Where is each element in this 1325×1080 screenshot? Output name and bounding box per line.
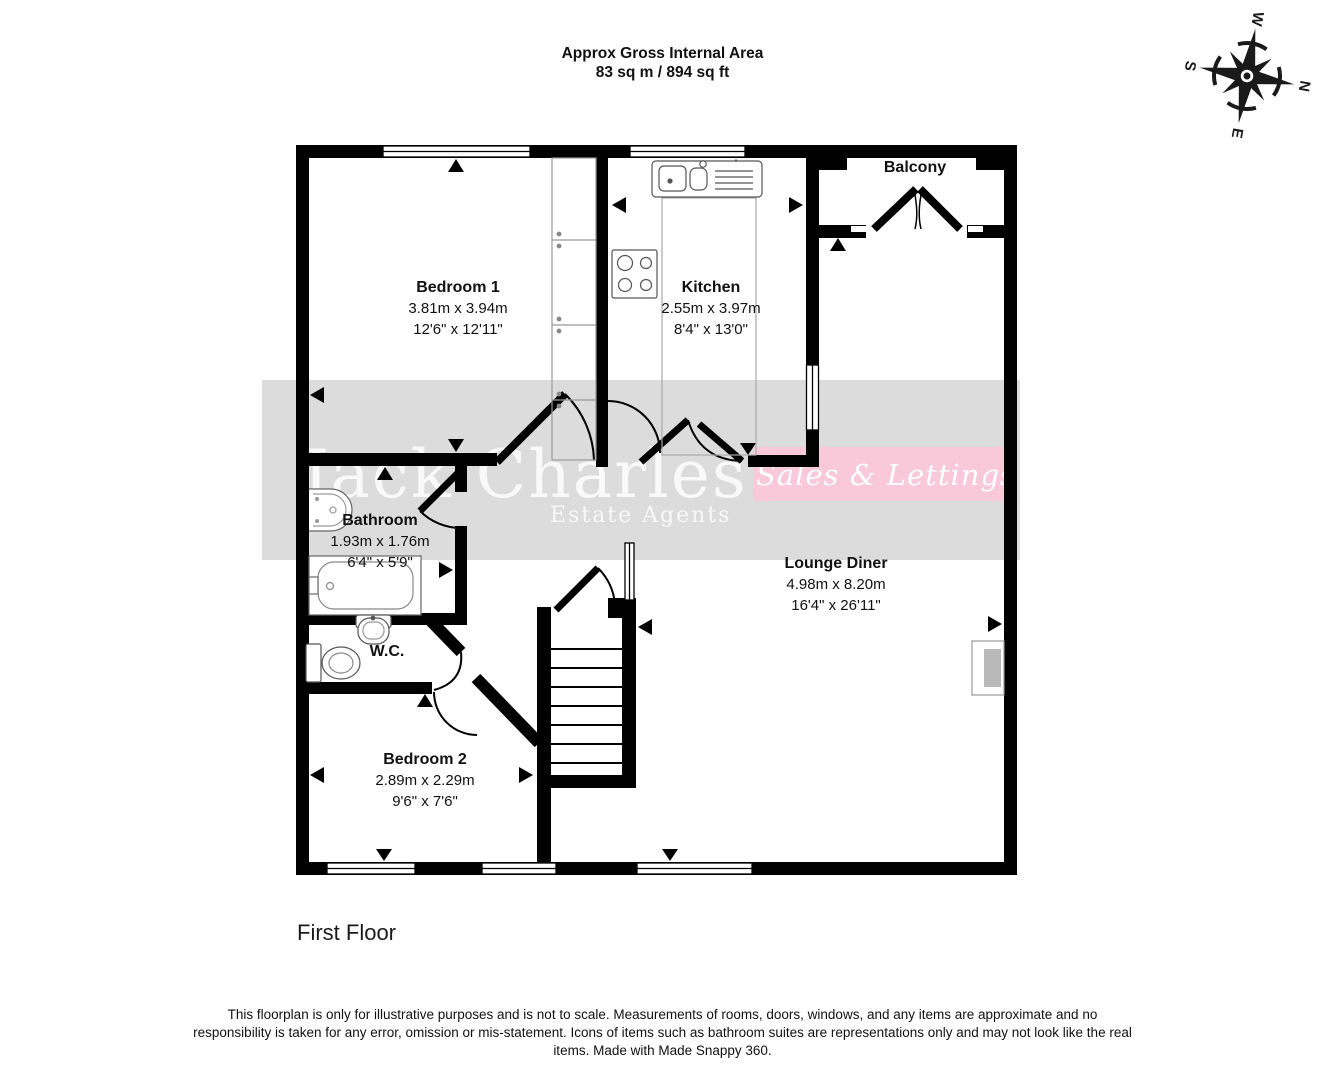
balcony-door-notch-right — [968, 226, 983, 232]
window-hall-bottom — [482, 863, 556, 874]
stairs-icon — [551, 649, 622, 763]
marker-up — [417, 694, 433, 707]
room-dim-metric-lounge: 4.98m x 8.20m — [786, 576, 885, 593]
room-dim-imperial-kitchen: 8'4" x 13'0" — [674, 321, 748, 338]
compass-w-label: W — [1247, 10, 1266, 28]
marker-down — [662, 849, 678, 861]
window-bedroom2-bottom — [327, 863, 415, 874]
room-label-kitchen: Kitchen — [682, 279, 741, 296]
room-label-balcony: Balcony — [884, 159, 946, 176]
door-bedroom2 — [434, 692, 477, 735]
room-dim-imperial-lounge: 16'4" x 26'11" — [791, 597, 881, 614]
door-wc — [434, 652, 461, 690]
hob-icon — [612, 250, 657, 298]
door-balcony-french — [874, 189, 960, 229]
window-lounge-bottom — [637, 863, 752, 874]
room-label-lounge: Lounge Diner — [784, 555, 887, 572]
marker-right — [789, 197, 803, 213]
marker-left — [638, 619, 652, 635]
window-stairs — [625, 543, 634, 600]
marker-up — [830, 238, 846, 251]
marker-left — [612, 197, 626, 213]
floor-label: First Floor — [297, 920, 396, 946]
compass-rose-icon: N E S W — [1171, 0, 1324, 149]
footer: This floorplan is only for illustrative … — [0, 1006, 1325, 1060]
disclaimer-text: This floorplan is only for illustrative … — [188, 1006, 1138, 1060]
room-dim-metric-kitchen: 2.55m x 3.97m — [661, 300, 760, 317]
floor-plan-drawing: Jack Charles Estate Agents Sales & Letti… — [0, 0, 1325, 1080]
floorplan-page: Approx Gross Internal Area 83 sq m / 894… — [0, 0, 1325, 1080]
door-stairs — [556, 568, 615, 610]
watermark-sub-text: Estate Agents — [550, 503, 731, 528]
room-dim-imperial-bathroom: 6'4" x 5'9" — [347, 554, 413, 571]
room-dim-metric-bedroom1: 3.81m x 3.94m — [408, 300, 507, 317]
window-kitchen-lounge — [807, 365, 819, 430]
window-kitchen-top — [630, 146, 745, 157]
room-label-wc: W.C. — [370, 643, 405, 660]
marker-right — [988, 616, 1002, 632]
room-label-bedroom1: Bedroom 1 — [416, 279, 500, 296]
room-dim-metric-bathroom: 1.93m x 1.76m — [330, 533, 429, 550]
wc-basin-icon — [356, 615, 391, 644]
sink-icon — [652, 161, 762, 197]
diagonal-walls — [430, 620, 539, 743]
marker-right — [519, 767, 533, 783]
compass-n-label: N — [1295, 79, 1314, 93]
room-label-bedroom2: Bedroom 2 — [383, 751, 467, 768]
marker-right — [439, 562, 453, 578]
compass-e-label: E — [1228, 127, 1246, 140]
marker-up — [448, 159, 464, 172]
balcony-door-notch-left — [851, 226, 866, 232]
room-dim-imperial-bedroom1: 12'6" x 12'11" — [413, 321, 503, 338]
fireplace-icon — [972, 641, 1004, 695]
marker-left — [310, 767, 324, 783]
watermark-brand-text: Jack Charles — [296, 436, 748, 513]
room-label-bathroom: Bathroom — [342, 512, 418, 529]
toilet-icon — [306, 644, 360, 682]
compass-s-label: S — [1181, 60, 1199, 73]
room-dim-imperial-bedroom2: 9'6" x 7'6" — [392, 793, 458, 810]
marker-down — [376, 849, 392, 861]
window-bedroom1-top — [383, 146, 530, 157]
room-dim-metric-bedroom2: 2.89m x 2.29m — [375, 772, 474, 789]
